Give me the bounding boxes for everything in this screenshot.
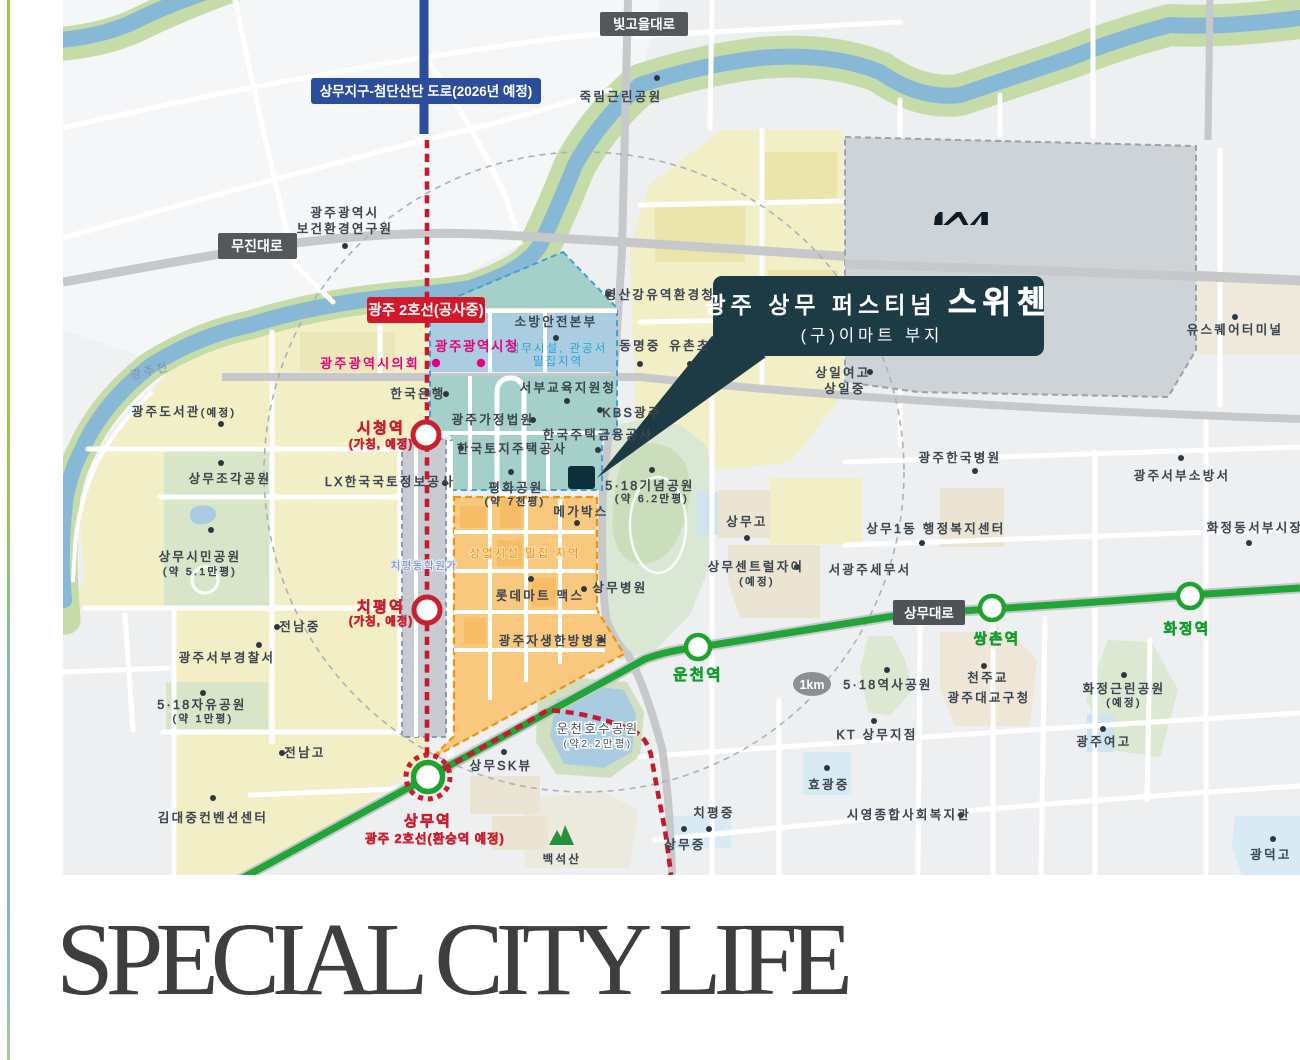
svg-text:빛고을대로: 빛고을대로 (613, 17, 676, 32)
svg-text:상무역: 상무역 (404, 813, 452, 830)
svg-text:시청역: 시청역 (357, 420, 405, 437)
svg-text:천주교: 천주교 (967, 670, 1008, 685)
svg-text:상무조각공원: 상무조각공원 (189, 472, 272, 486)
svg-text:(예정): (예정) (1106, 696, 1142, 709)
svg-text:시영종합사회복지관: 시영종합사회복지관 (847, 808, 971, 822)
svg-text:보건환경연구원: 보건환경연구원 (297, 222, 394, 236)
svg-text:상무시민공원: 상무시민공원 (159, 550, 242, 564)
svg-text:광주도서관(예정): 광주도서관(예정) (132, 405, 237, 419)
svg-text:광주가정법원: 광주가정법원 (452, 413, 535, 427)
svg-text:운천호수공원: 운천호수공원 (557, 721, 640, 736)
svg-text:광주한국병원: 광주한국병원 (919, 451, 1002, 465)
svg-text:광주광역시: 광주광역시 (310, 206, 379, 220)
svg-text:(약 5.1만평): (약 5.1만평) (163, 566, 237, 578)
svg-text:메가박스: 메가박스 (553, 505, 608, 519)
svg-text:광주서부소방서: 광주서부소방서 (1134, 469, 1231, 483)
svg-text:(약 1만평): (약 1만평) (173, 713, 234, 725)
svg-text:영산강유역환경청: 영산강유역환경청 (605, 288, 715, 302)
svg-text:유스퀘어터미널: 유스퀘어터미널 (1187, 323, 1284, 337)
svg-text:(예정): (예정) (739, 575, 775, 588)
svg-text:서부교육지원청: 서부교육지원청 (520, 381, 617, 395)
svg-text:상무1동 행정복지센터: 상무1동 행정복지센터 (866, 521, 1005, 536)
svg-text:LX한국국토정보공사: LX한국국토정보공사 (325, 475, 455, 489)
svg-text:백석산: 백석산 (543, 853, 582, 866)
svg-text:(구)이마트 부지: (구)이마트 부지 (801, 326, 944, 345)
svg-text:광주광역시청: 광주광역시청 (435, 338, 519, 354)
svg-text:무진대로: 무진대로 (231, 238, 283, 254)
svg-text:운천역: 운천역 (673, 666, 723, 684)
svg-text:(가칭, 예정): (가칭, 예정) (349, 614, 413, 628)
svg-text:광덕고: 광덕고 (1250, 848, 1291, 862)
svg-text:치평중: 치평중 (693, 806, 734, 820)
svg-text:한국은행: 한국은행 (390, 386, 445, 401)
svg-text:광주서부경찰서: 광주서부경찰서 (179, 651, 276, 665)
svg-text:전남중: 전남중 (279, 620, 320, 634)
svg-text:광주여고: 광주여고 (1076, 735, 1131, 749)
svg-text:김대중컨벤션센터: 김대중컨벤션센터 (158, 811, 268, 825)
svg-text:상무SK뷰: 상무SK뷰 (470, 759, 533, 773)
svg-text:상무지구-첨단산단 도로(2026년 예정): 상무지구-첨단산단 도로(2026년 예정) (320, 83, 532, 99)
svg-text:(약2.2만평): (약2.2만평) (564, 738, 633, 750)
svg-text:(약 6.2만평): (약 6.2만평) (615, 493, 689, 505)
svg-text:(약 7천평): (약 7천평) (485, 496, 546, 508)
svg-text:광주자생한방병원: 광주자생한방병원 (499, 634, 609, 648)
svg-text:치평역: 치평역 (357, 598, 405, 616)
svg-text:상무중: 상무중 (664, 838, 705, 852)
svg-text:(가칭, 예정): (가칭, 예정) (349, 437, 413, 451)
svg-text:상일중: 상일중 (824, 382, 865, 396)
svg-text:광주 2호선(공사중): 광주 2호선(공사중) (368, 301, 483, 319)
svg-text:치평동학원가: 치평동학원가 (391, 560, 458, 572)
svg-text:유촌초: 유촌초 (669, 339, 710, 353)
svg-text:상무대로: 상무대로 (904, 606, 954, 621)
svg-text:광주광역시의회: 광주광역시의회 (320, 356, 420, 371)
svg-text:화정근린공원: 화정근린공원 (1083, 682, 1166, 696)
svg-text:평화공원: 평화공원 (488, 481, 543, 495)
svg-text:롯데마트 맥스: 롯데마트 맥스 (496, 589, 585, 603)
svg-text:동명중: 동명중 (619, 339, 660, 353)
svg-text:효광중: 효광중 (808, 778, 849, 792)
svg-text:밀집지역: 밀집지역 (533, 355, 583, 368)
svg-text:업무시설, 관공서: 업무시설, 관공서 (509, 342, 607, 355)
svg-text:화정동서부시장: 화정동서부시장 (1207, 521, 1300, 535)
svg-text:화정역: 화정역 (1164, 620, 1211, 638)
svg-text:상업시설 밀집 지역: 상업시설 밀집 지역 (469, 547, 580, 560)
svg-text:KT 상무지점: KT 상무지점 (836, 728, 917, 742)
svg-text:상무센트럴자이: 상무센트럴자이 (708, 560, 805, 574)
svg-text:5·18역사공원: 5·18역사공원 (843, 678, 932, 692)
svg-text:1km: 1km (799, 678, 824, 692)
svg-text:쌍촌역: 쌍촌역 (974, 631, 1021, 648)
svg-text:한국토지주택공사: 한국토지주택공사 (457, 442, 567, 456)
svg-text:KBS광주: KBS광주 (602, 406, 662, 420)
svg-text:소방안전본부: 소방안전본부 (515, 315, 598, 329)
svg-text:상무고: 상무고 (726, 515, 767, 529)
svg-text:죽림근린공원: 죽림근린공원 (580, 90, 663, 104)
svg-text:한국주택금융공사: 한국주택금융공사 (543, 428, 653, 442)
svg-text:상무병원: 상무병원 (592, 581, 647, 595)
svg-text:광주대교구청: 광주대교구청 (948, 691, 1031, 705)
svg-text:상일여고: 상일여고 (815, 366, 870, 380)
svg-text:전남고: 전남고 (284, 746, 325, 760)
svg-text:광주 2호선(환승역 예정): 광주 2호선(환승역 예정) (365, 831, 505, 846)
svg-text:서광주세무서: 서광주세무서 (829, 563, 912, 577)
svg-text:5·18자유공원: 5·18자유공원 (157, 698, 246, 712)
svg-text:5·18기념공원: 5·18기념공원 (605, 479, 694, 493)
